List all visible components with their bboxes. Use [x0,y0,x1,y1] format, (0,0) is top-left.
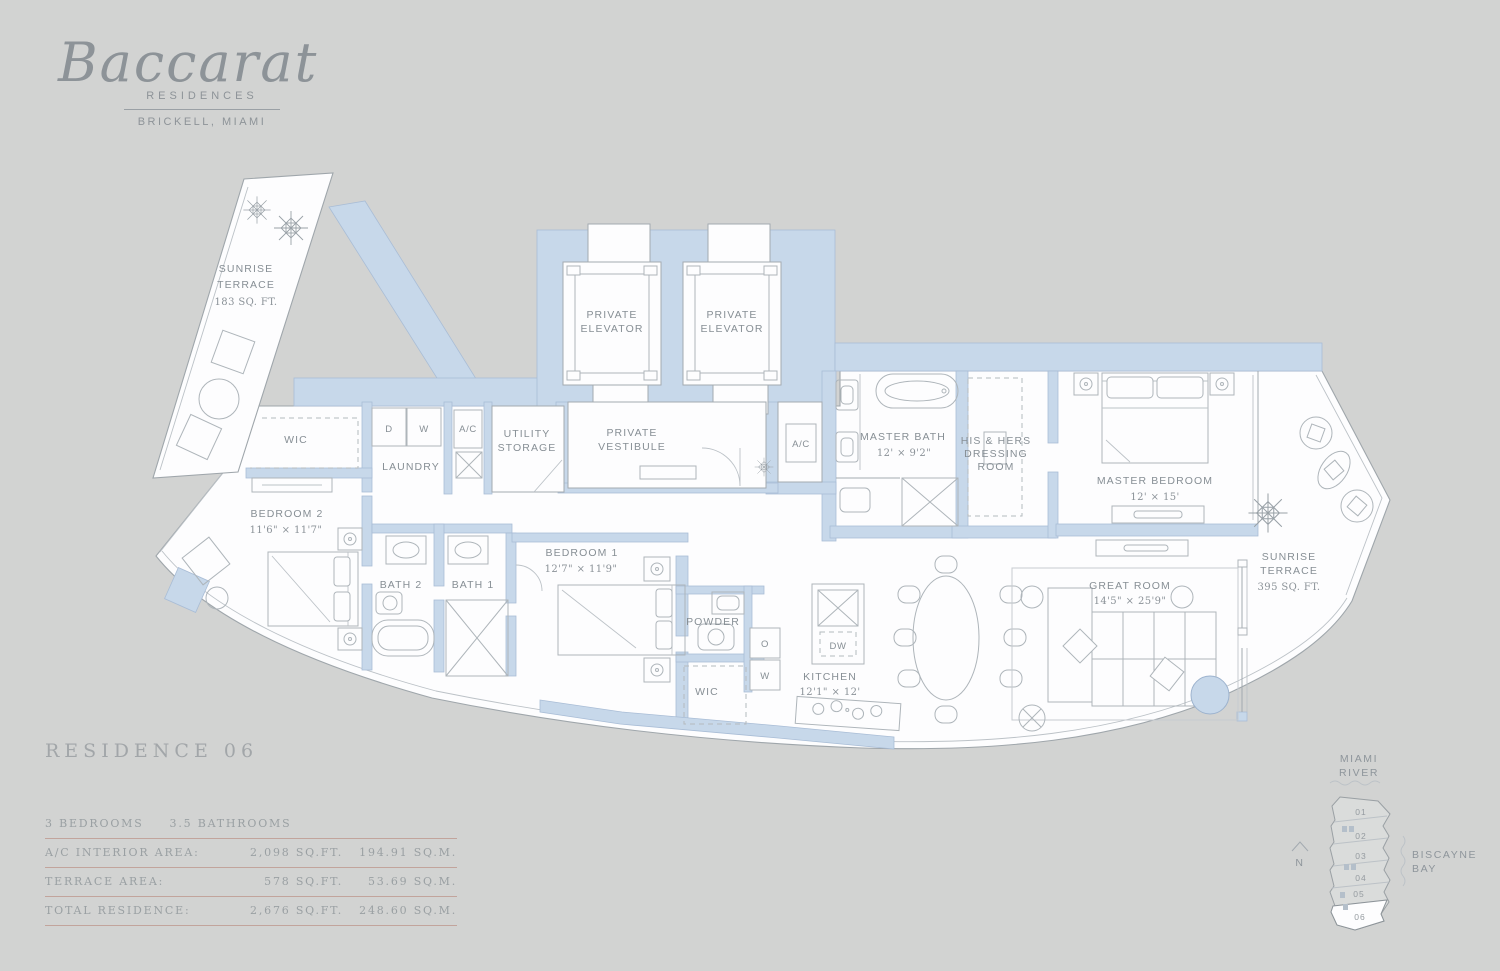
room-label: MASTER BATH [860,431,946,443]
row-sqft: 2,098 SQ.FT. [217,846,343,859]
unit-label: 04 [1355,873,1366,883]
room-label: STORAGE [498,442,557,454]
row-sqm: 194.91 SQ.M. [343,846,457,859]
row-sqm: 53.69 SQ.M. [343,875,457,888]
private-elevator-2: PRIVATE ELEVATOR [683,262,781,385]
room-dims: 12' × 9'2" [877,448,931,459]
room-label: TERRACE [217,279,275,291]
plant-icon [243,196,270,223]
room-label: HIS & HERS [961,435,1032,447]
unit-label: 03 [1355,851,1366,861]
room-label: BEDROOM 1 [546,547,619,559]
plant-icon [1248,493,1287,532]
room-label: VESTIBULE [598,441,666,453]
elevator-core-icon [1344,864,1349,870]
unit-label: 01 [1355,807,1366,817]
north-label: N [1295,857,1304,869]
room-area: 395 SQ. FT. [1258,582,1321,593]
appliance-label: D [385,424,392,435]
row-sqft: 578 SQ.FT. [217,875,343,888]
room-label: BATH 2 [380,579,423,591]
room-label: SUNRISE [1262,551,1316,563]
room-label: ELEVATOR [700,323,763,335]
room-label: ROOM [977,461,1014,473]
residence-title: RESIDENCE 06 [45,740,258,762]
unit-label: 06 [1354,912,1365,922]
room-label: PRIVATE [586,309,637,321]
room-label: BEDROOM 2 [251,508,324,520]
dining-table [913,576,979,700]
plant-icon [274,211,308,245]
water-wave-icon [1330,781,1380,785]
appliance-label: DW [829,641,846,652]
stats-header-row: 3 BEDROOMS 3.5 BATHROOMS [45,810,457,839]
unit-label: 02 [1355,831,1366,841]
room-label: POWDER [686,616,740,628]
room-label: SUNRISE [219,263,273,275]
room-label: PRIVATE [606,427,657,439]
bay-label: BAY [1412,863,1437,875]
appliance-label: W [419,424,429,435]
room-area: 183 SQ. FT. [215,297,278,308]
river-label: MIAMI [1340,753,1378,765]
ottoman-icon [1191,676,1229,714]
bedrooms-count: 3 BEDROOMS [45,817,144,830]
water-wave-icon [1401,836,1405,886]
elevator-core-icon [1342,826,1347,832]
elevator-core-icon [1340,892,1345,898]
room-label: A/C [459,424,477,435]
stats-row-terrace: TERRACE AREA: 578 SQ.FT. 53.69 SQ.M. [45,868,457,897]
unit-label: 05 [1353,889,1364,899]
room-label: KITCHEN [803,671,857,683]
room-dims: 14'5" × 25'9" [1094,596,1167,607]
row-label: TOTAL RESIDENCE: [45,904,217,917]
key-plan: MIAMI RIVER BISCAYNE BAY N 01 02 03 04 0… [1292,753,1477,930]
room-dims: 12' × 15' [1130,492,1179,503]
elevator-core-icon [1351,864,1356,870]
private-elevator-1: PRIVATE ELEVATOR [563,262,661,385]
room-label: MASTER BEDROOM [1097,475,1213,487]
row-label: A/C INTERIOR AREA: [45,846,217,859]
bay-label: BISCAYNE [1412,849,1477,861]
room-label: GREAT ROOM [1089,580,1171,592]
elevator-core-icon [1349,826,1354,832]
room-label: DRESSING [964,448,1028,460]
plant-icon [755,458,774,477]
room-label: ELEVATOR [580,323,643,335]
river-label: RIVER [1339,767,1379,779]
room-label: WIC [695,686,719,698]
room-label: WIC [284,434,308,446]
bathrooms-count: 3.5 BATHROOMS [170,817,292,830]
stats-row-total: TOTAL RESIDENCE: 2,676 SQ.FT. 248.60 SQ.… [45,897,457,926]
stats-table: 3 BEDROOMS 3.5 BATHROOMS A/C INTERIOR AR… [45,810,457,926]
room-label: LAUNDRY [382,461,440,473]
room-dims: 12'7" × 11'9" [545,564,618,575]
north-arrow-icon [1292,842,1308,851]
room-label: A/C [792,439,810,450]
room-dims: 12'1" × 12' [799,687,860,698]
floorplan-page: { "brand": {"name": "Baccarat", "sub": "… [0,0,1500,971]
room-label: BATH 1 [452,579,495,591]
row-label: TERRACE AREA: [45,875,217,888]
room-label: UTILITY [504,428,551,440]
row-sqm: 248.60 SQ.M. [343,904,457,917]
stats-row-interior: A/C INTERIOR AREA: 2,098 SQ.FT. 194.91 S… [45,839,457,868]
room-label: TERRACE [1260,565,1318,577]
private-vestibule: PRIVATE VESTIBULE [568,402,766,488]
appliance-label: W [760,671,770,682]
elevator-core-icon [1343,904,1348,910]
room-label: PRIVATE [706,309,757,321]
utility-storage: UTILITY STORAGE [492,406,564,492]
row-sqft: 2,676 SQ.FT. [217,904,343,917]
room-dims: 11'6" × 11'7" [250,525,323,536]
appliance-label: O [761,639,769,650]
